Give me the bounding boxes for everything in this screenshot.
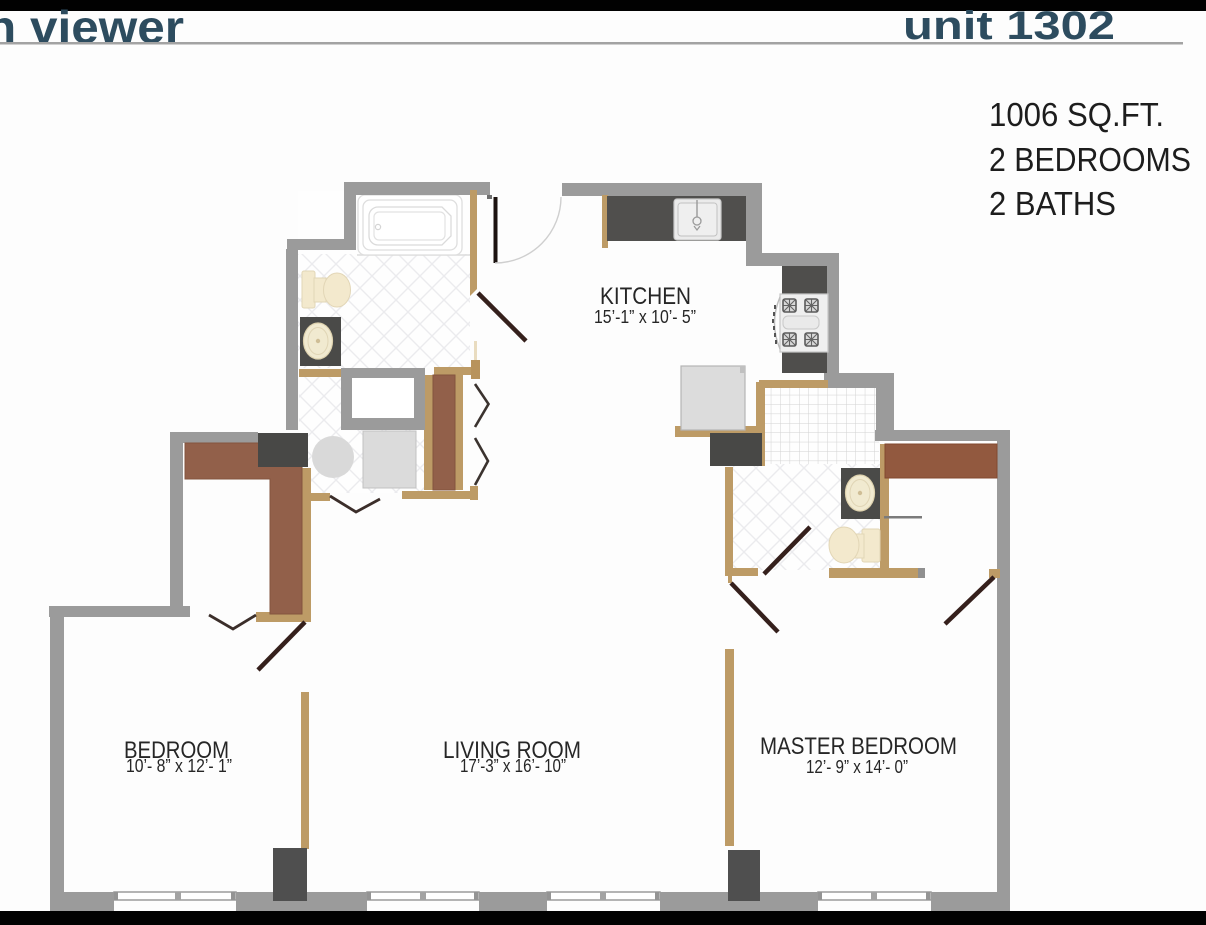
svg-text:unit 1302: unit 1302 [903, 4, 1115, 48]
svg-text:1006 SQ.FT.: 1006 SQ.FT. [989, 97, 1164, 134]
svg-text:10’- 8” x 12’- 1”: 10’- 8” x 12’- 1” [126, 756, 232, 776]
svg-text:KITCHEN: KITCHEN [600, 283, 691, 310]
svg-text:n viewer: n viewer [0, 1, 184, 53]
svg-text:15’-1” x 10’- 5”: 15’-1” x 10’- 5” [594, 307, 696, 327]
svg-text:12’- 9” x 14’- 0”: 12’- 9” x 14’- 0” [806, 757, 908, 777]
svg-text:MASTER BEDROOM: MASTER BEDROOM [760, 733, 957, 760]
svg-text:2 BEDROOMS: 2 BEDROOMS [989, 142, 1191, 179]
svg-text:2 BATHS: 2 BATHS [989, 186, 1116, 223]
svg-text:17’-3” x 16’- 10”: 17’-3” x 16’- 10” [460, 756, 566, 776]
